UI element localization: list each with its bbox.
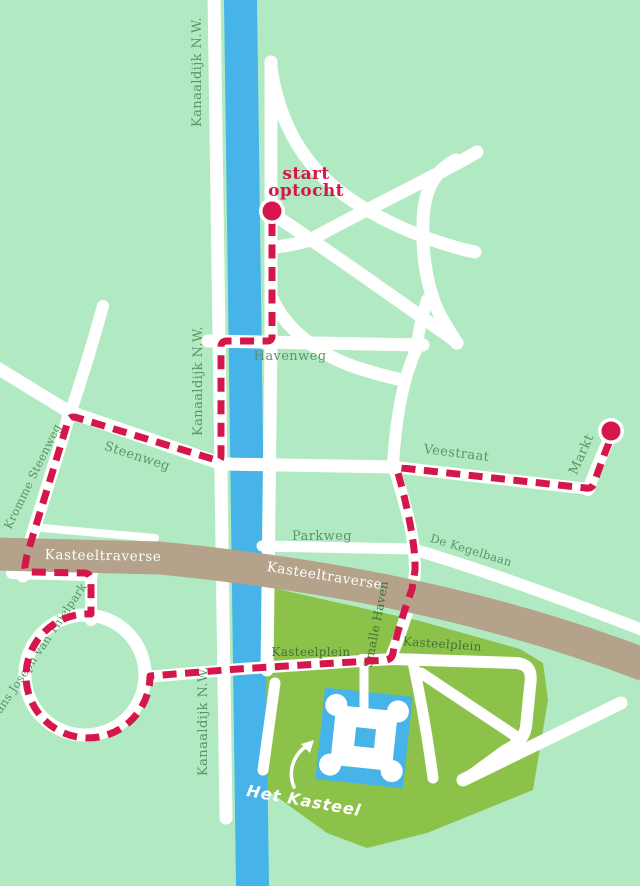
route-end-marker [602, 422, 621, 441]
parade-route-map: Kanaaldijk N.W. Kanaaldijk N.W. Kanaaldi… [0, 0, 640, 886]
map-canvas: Kanaaldijk N.W. Kanaaldijk N.W. Kanaaldi… [0, 0, 640, 886]
street-label-kanaaldijk-bottom: Kanaaldijk N.W. [196, 666, 211, 776]
road-parkweg [262, 546, 412, 549]
street-label-kasteelplein-west: Kasteelplein [272, 645, 351, 659]
street-label-kasteeltraverse-west: Kasteeltraverse [45, 547, 162, 565]
start-optocht-label-line2: optocht [268, 181, 344, 201]
street-label-havenweg: Havenweg [254, 349, 327, 364]
route-start-marker [263, 202, 282, 221]
street-label-kanaaldijk-mid: Kanaaldijk N.W. [191, 326, 206, 436]
street-label-kanaaldijk-top: Kanaaldijk N.W. [190, 17, 205, 127]
castle-courtyard [354, 727, 376, 748]
street-label-parkweg: Parkweg [292, 529, 352, 544]
